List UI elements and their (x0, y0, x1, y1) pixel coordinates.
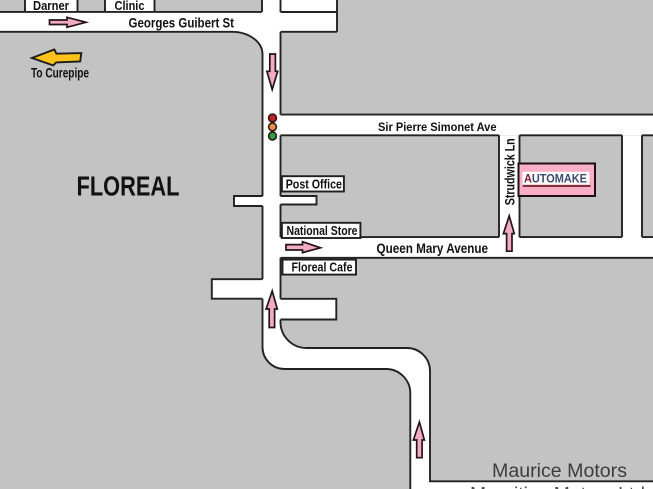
svg-text:Maurice Motors: Maurice Motors (492, 461, 627, 482)
svg-text:Post Office: Post Office (286, 176, 342, 191)
svg-text:Mauritius Motors Ltd: Mauritius Motors Ltd (470, 485, 645, 489)
svg-text:Darner: Darner (33, 0, 69, 13)
svg-text:Georges Guibert St: Georges Guibert St (129, 16, 235, 31)
svg-text:To Curepipe: To Curepipe (31, 65, 89, 80)
svg-text:National Store: National Store (287, 223, 358, 238)
svg-text:Clinic: Clinic (115, 0, 145, 13)
svg-text:Queen Mary Avenue: Queen Mary Avenue (377, 241, 489, 256)
svg-text:Sir Pierre Simonet Ave: Sir Pierre Simonet Ave (378, 120, 497, 134)
svg-text:Strudwick Ln: Strudwick Ln (502, 138, 518, 205)
svg-text:AUTOMAKE: AUTOMAKE (524, 171, 587, 185)
svg-text:Floreal Cafe: Floreal Cafe (292, 260, 353, 275)
svg-text:FLOREAL: FLOREAL (77, 170, 180, 201)
